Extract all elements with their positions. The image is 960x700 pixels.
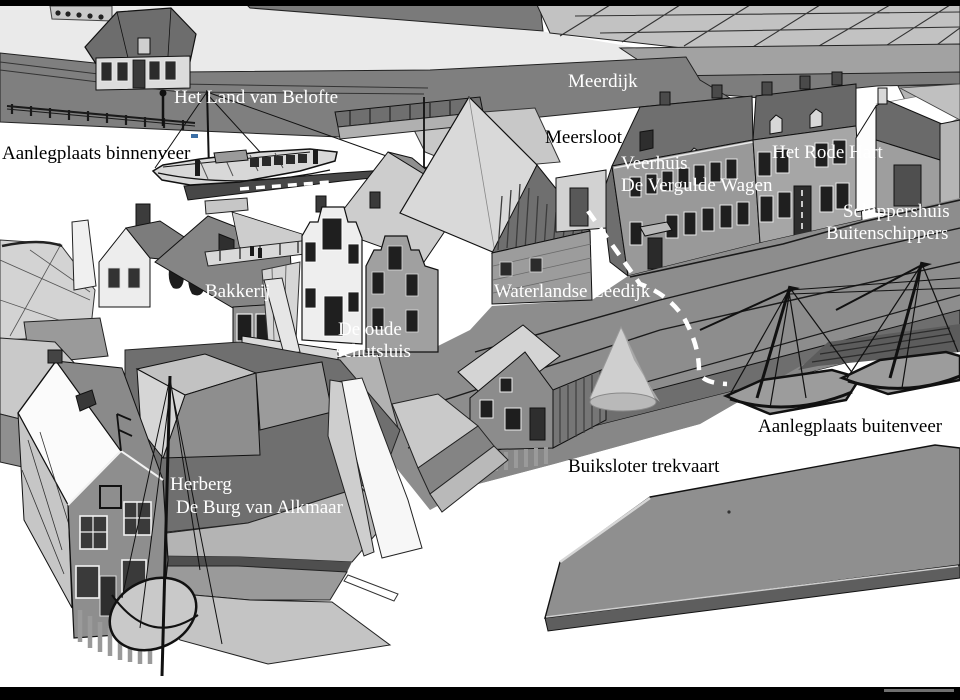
svg-text:Aanlegplaats buitenveer: Aanlegplaats buitenveer: [758, 416, 943, 437]
svg-text:Het Rode Hart: Het Rode Hart: [772, 142, 884, 163]
svg-text:Waterlandse Zeedijk: Waterlandse Zeedijk: [494, 281, 651, 302]
svg-text:Buitenschippers: Buitenschippers: [826, 223, 948, 244]
svg-text:Herberg: Herberg: [170, 474, 232, 495]
svg-text:Veerhuis: Veerhuis: [621, 153, 687, 174]
svg-text:De oude: De oude: [338, 319, 402, 340]
svg-text:Schippershuis: Schippershuis: [843, 201, 950, 222]
svg-text:Aanlegplaats binnenveer: Aanlegplaats binnenveer: [2, 143, 191, 164]
svg-text:Het Land van Belofte: Het Land van Belofte: [174, 87, 338, 108]
svg-text:De Vergulde Wagen: De Vergulde Wagen: [621, 175, 773, 196]
svg-text:Meersloot: Meersloot: [545, 127, 623, 148]
svg-text:Buiksloter trekvaart: Buiksloter trekvaart: [568, 456, 720, 477]
svg-text:Bakkerij: Bakkerij: [205, 281, 270, 302]
svg-text:Meerdijk: Meerdijk: [568, 71, 638, 92]
svg-text:schutsluis: schutsluis: [336, 341, 411, 362]
svg-text:De Burg van Alkmaar: De Burg van Alkmaar: [176, 497, 344, 518]
